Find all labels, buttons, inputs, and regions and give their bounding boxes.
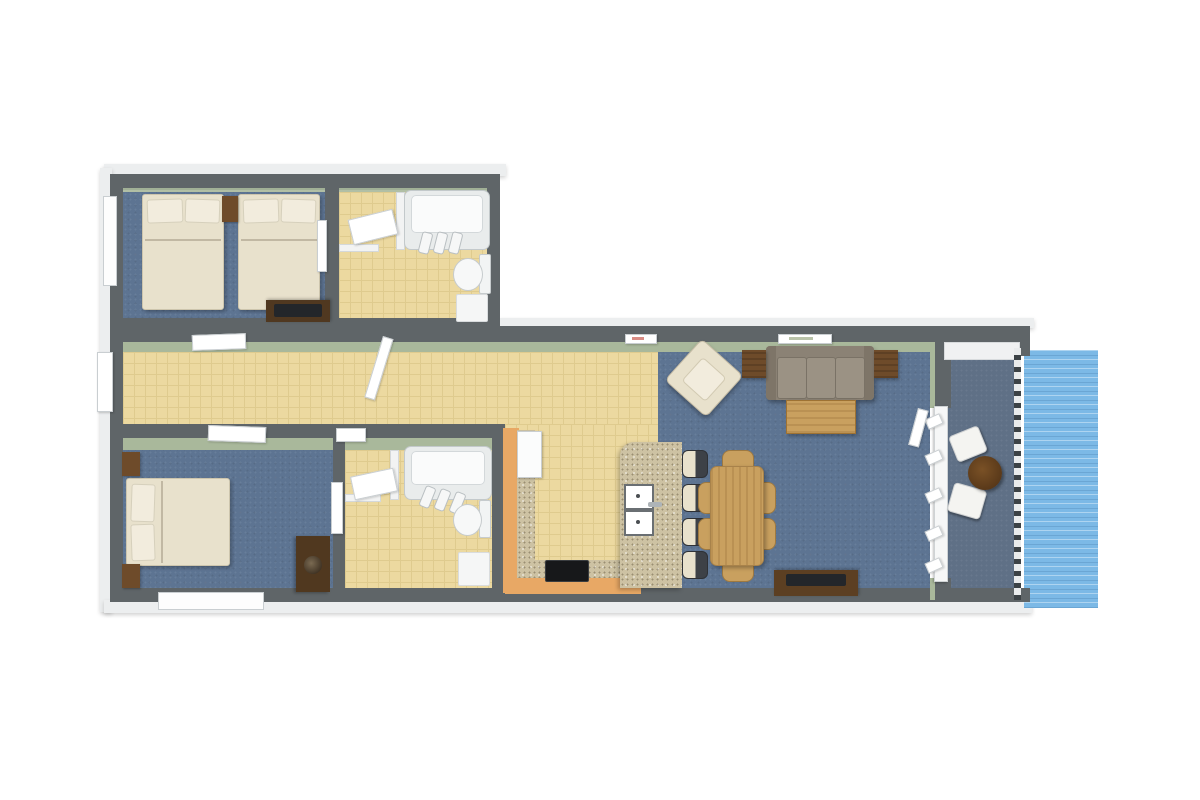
pillow [147, 198, 184, 223]
hallway-entry-door [97, 352, 113, 412]
pillow [130, 524, 155, 562]
bar-stool-1 [682, 450, 708, 478]
bedroom-1-bed-right [238, 194, 320, 310]
bedroom-2-nightstand-bottom [122, 564, 140, 588]
sofa-cushion [835, 357, 865, 399]
bathroom-2-side-door [331, 482, 343, 534]
dining-desk [774, 570, 858, 596]
bedroom-2-door-leaf [208, 425, 267, 443]
desk-tv [786, 574, 846, 586]
bathroom-2-bath-mat [458, 552, 490, 586]
bedroom-2-dresser [296, 536, 330, 592]
bedroom-1-tv [274, 304, 322, 317]
bathroom-1-door-leaf-on-divider [317, 220, 327, 272]
bedroom-2-window [158, 592, 264, 610]
bedroom-1-door-leaf [192, 333, 247, 351]
bedroom-1-wall-face-top [123, 188, 325, 192]
main-wall-top [500, 326, 1030, 342]
dining-table [710, 466, 764, 566]
bathtub-basin [411, 451, 485, 485]
bedroom-1-bed-left [142, 194, 224, 310]
pillow [243, 198, 280, 223]
wall-art-detail [632, 337, 644, 340]
living-coffee-table [786, 400, 856, 434]
kitchen-refrigerator [517, 431, 542, 478]
armchair-cushion [681, 357, 726, 402]
end-table-right [874, 350, 898, 378]
duvet-fold [145, 239, 221, 241]
balcony-railing [1014, 348, 1021, 600]
sofa-cushion [777, 357, 807, 399]
sink-faucet [648, 502, 662, 507]
bathroom-1-toilet-bowl [453, 258, 483, 291]
wall-art-detail [789, 337, 813, 340]
duvet-fold [241, 239, 317, 241]
bedroom-2-dresser-lamp [304, 556, 322, 574]
living-sofa [766, 346, 874, 400]
duvet-fold [161, 481, 163, 563]
wall-art-small [625, 334, 657, 344]
end-table-left [742, 350, 766, 378]
bathroom-1-bath-mat [456, 294, 488, 322]
pillow [130, 484, 155, 523]
balcony-ledge [944, 342, 1020, 360]
bedroom-1-nightstand [222, 196, 238, 222]
sink-drain [636, 494, 640, 498]
balcony-bistro-table [968, 456, 1002, 490]
pillow [185, 198, 221, 223]
floor-plan-canvas [0, 0, 1200, 800]
bathroom-2-toilet-bowl [453, 504, 482, 536]
sofa-armrest-left [766, 346, 776, 400]
wall-art-wide [778, 334, 832, 344]
kitchen-stove [545, 560, 589, 582]
pillow [281, 198, 317, 223]
bar-stool-4 [682, 551, 708, 579]
bathroom-1-bathtub [404, 190, 490, 250]
bedroom-1-dresser [266, 300, 330, 322]
bedroom-2-bed [126, 478, 230, 566]
bedroom-2-nightstand-top [122, 452, 140, 476]
bathroom-2-hall-door-leaf [336, 428, 366, 442]
sink-drain [636, 520, 640, 524]
water-surface [1024, 350, 1098, 608]
kitchen-sink-lower [624, 510, 654, 536]
bedroom-1-window [103, 196, 117, 286]
hallway-floor [123, 352, 658, 424]
sofa-armrest-right [864, 346, 874, 400]
bathtub-basin [411, 195, 483, 233]
bathroom-1-closet-wall-bottom [339, 244, 379, 252]
sofa-cushion [806, 357, 836, 399]
